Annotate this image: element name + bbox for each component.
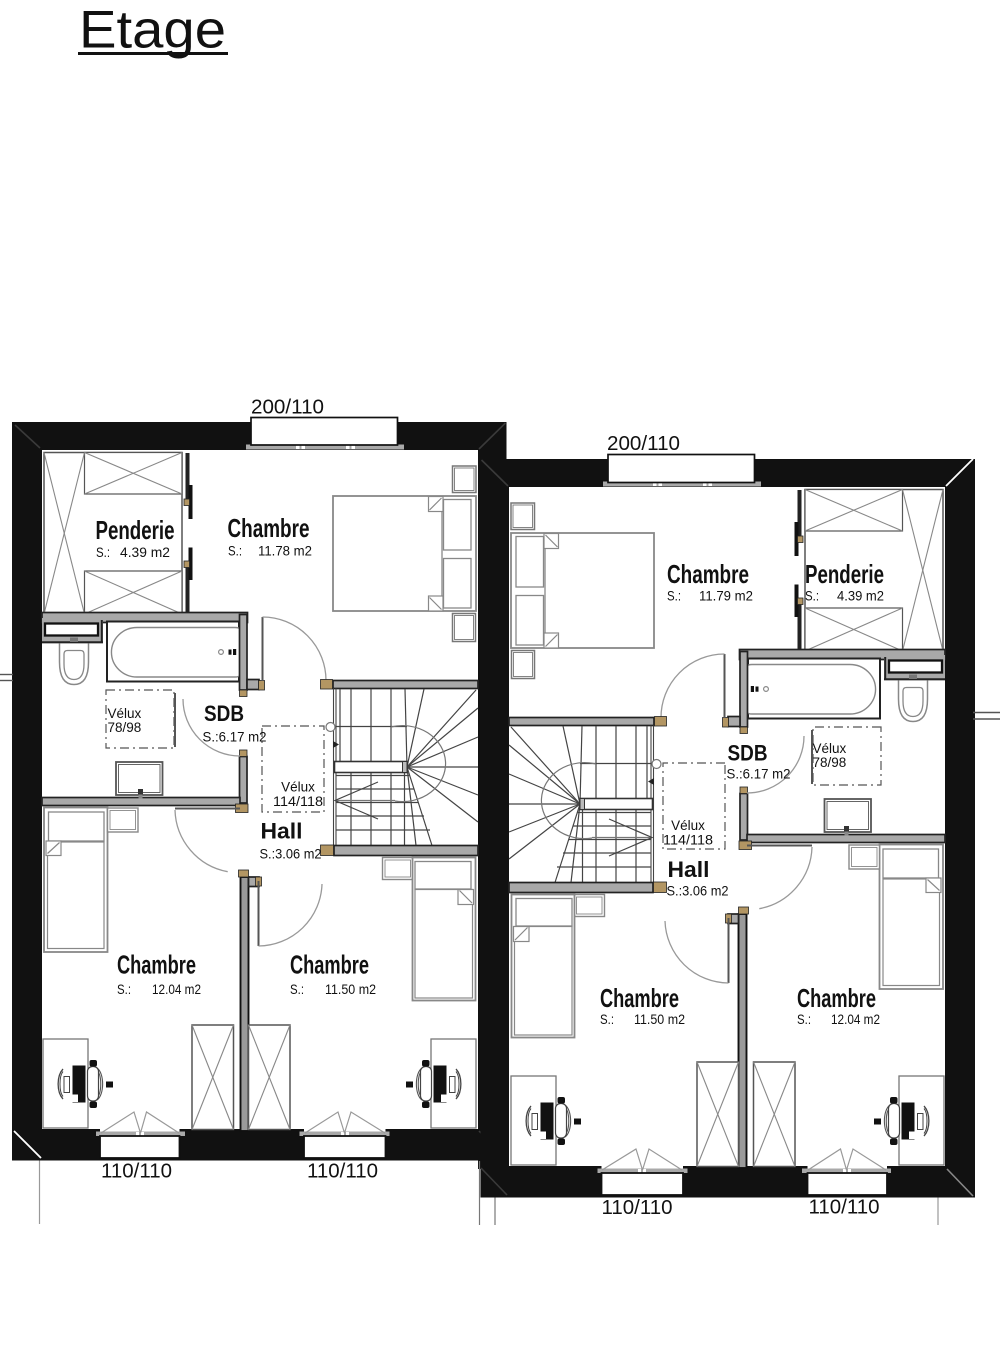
svg-text:SDB: SDB — [728, 741, 768, 766]
svg-text:4.39 m2: 4.39 m2 — [120, 544, 170, 560]
svg-text:S.:: S.: — [290, 981, 304, 997]
svg-text:Chambre: Chambre — [290, 950, 369, 980]
svg-text:S.:6.17 m2: S.:6.17 m2 — [203, 729, 267, 745]
svg-text:SDB: SDB — [204, 701, 244, 726]
svg-text:Chambre: Chambre — [797, 983, 876, 1013]
svg-text:S.:: S.: — [805, 588, 819, 604]
svg-text:Vélux: Vélux — [813, 741, 847, 756]
svg-text:Vélux: Vélux — [671, 818, 705, 833]
svg-text:Vélux: Vélux — [108, 706, 142, 721]
svg-text:11.50 m2: 11.50 m2 — [325, 981, 376, 997]
svg-text:Vélux: Vélux — [281, 780, 315, 795]
svg-text:S.:: S.: — [600, 1011, 614, 1027]
svg-text:12.04 m2: 12.04 m2 — [152, 981, 201, 997]
svg-text:11.79 m2: 11.79 m2 — [699, 588, 753, 604]
svg-text:S.:: S.: — [117, 981, 131, 997]
svg-text:Penderie: Penderie — [805, 559, 884, 589]
svg-text:Chambre: Chambre — [667, 559, 749, 589]
svg-text:Chambre: Chambre — [228, 513, 310, 543]
svg-text:11.78 m2: 11.78 m2 — [258, 543, 312, 559]
svg-text:12.04 m2: 12.04 m2 — [831, 1011, 880, 1027]
svg-text:Hall: Hall — [261, 819, 303, 844]
svg-text:S.:3.06 m2: S.:3.06 m2 — [260, 846, 322, 862]
svg-text:11.50 m2: 11.50 m2 — [634, 1011, 685, 1027]
svg-text:200/110: 200/110 — [251, 397, 324, 419]
svg-text:114/118: 114/118 — [663, 833, 713, 848]
svg-text:Penderie: Penderie — [96, 515, 175, 545]
svg-text:S.:: S.: — [667, 588, 681, 604]
svg-text:S.:: S.: — [228, 543, 242, 559]
svg-text:S.:: S.: — [797, 1011, 811, 1027]
svg-text:S.:3.06 m2: S.:3.06 m2 — [667, 883, 729, 899]
svg-text:Chambre: Chambre — [117, 950, 196, 980]
svg-text:S.:6.17 m2: S.:6.17 m2 — [727, 766, 791, 782]
svg-text:Etage: Etage — [79, 1, 226, 60]
svg-text:78/98: 78/98 — [108, 720, 142, 735]
svg-text:110/110: 110/110 — [307, 1161, 378, 1183]
svg-text:110/110: 110/110 — [602, 1197, 673, 1219]
svg-text:Chambre: Chambre — [600, 983, 679, 1013]
svg-text:114/118: 114/118 — [273, 794, 323, 809]
svg-text:110/110: 110/110 — [101, 1161, 172, 1183]
svg-text:78/98: 78/98 — [813, 755, 847, 770]
svg-text:200/110: 200/110 — [607, 433, 680, 455]
svg-text:110/110: 110/110 — [809, 1197, 880, 1219]
svg-text:4.39 m2: 4.39 m2 — [837, 588, 884, 604]
svg-text:S.:: S.: — [96, 544, 110, 560]
svg-text:Hall: Hall — [668, 857, 710, 882]
